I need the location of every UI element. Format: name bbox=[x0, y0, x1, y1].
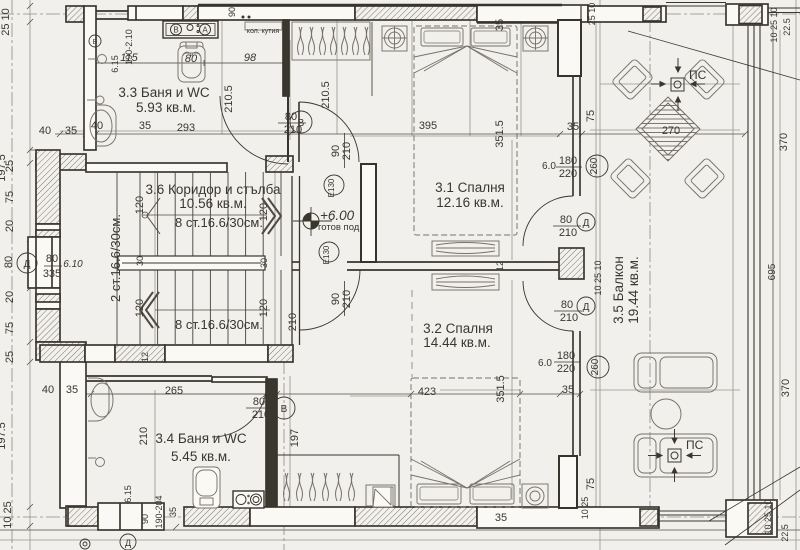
svg-text:6.0: 6.0 bbox=[542, 161, 556, 172]
svg-text:260: 260 bbox=[590, 358, 601, 375]
svg-text:Д: Д bbox=[125, 538, 131, 548]
svg-text:3.2 Спалня: 3.2 Спалня bbox=[423, 321, 493, 336]
svg-text:В: В bbox=[281, 404, 288, 415]
svg-text:75: 75 bbox=[585, 478, 597, 490]
svg-text:22.5: 22.5 bbox=[782, 18, 792, 36]
svg-text:40: 40 bbox=[39, 125, 51, 137]
svg-text:3.1 Спалня: 3.1 Спалня bbox=[435, 180, 505, 195]
svg-text:25 10: 25 10 bbox=[587, 3, 597, 26]
svg-text:20: 20 bbox=[4, 291, 16, 303]
svg-text:75: 75 bbox=[4, 191, 16, 203]
svg-text:120: 120 bbox=[134, 196, 146, 214]
svg-text:190-2.10: 190-2.10 bbox=[124, 29, 134, 65]
svg-text:80: 80 bbox=[561, 299, 573, 311]
svg-text:423: 423 bbox=[418, 386, 436, 398]
svg-text:75: 75 bbox=[585, 110, 597, 122]
svg-text:25 10: 25 10 bbox=[0, 8, 12, 36]
svg-text:35: 35 bbox=[567, 121, 579, 133]
svg-text:210: 210 bbox=[341, 142, 353, 160]
svg-text:10 25 10: 10 25 10 bbox=[763, 499, 773, 534]
svg-text:220: 220 bbox=[559, 168, 577, 180]
svg-text:14.44 кв.м.: 14.44 кв.м. bbox=[423, 335, 490, 350]
svg-text:35: 35 bbox=[65, 125, 77, 137]
svg-text:Д: Д bbox=[583, 302, 590, 313]
svg-text:90: 90 bbox=[140, 514, 150, 524]
svg-text:Е130: Е130 bbox=[327, 178, 336, 197]
svg-text:3.3 Баня и WC: 3.3 Баня и WC bbox=[118, 85, 209, 100]
svg-text:210: 210 bbox=[559, 227, 577, 239]
svg-text:Д: Д bbox=[583, 218, 590, 229]
svg-text:80: 80 bbox=[185, 53, 198, 65]
svg-text:80: 80 bbox=[3, 256, 15, 268]
svg-text:кол. кутия: кол. кутия bbox=[247, 28, 280, 35]
svg-text:В: В bbox=[173, 26, 178, 35]
svg-text:80: 80 bbox=[46, 253, 58, 265]
svg-text:2 ст.16.6/30см.: 2 ст.16.6/30см. bbox=[108, 214, 123, 302]
svg-text:12.16 кв.м.: 12.16 кв.м. bbox=[436, 195, 503, 210]
svg-text:120: 120 bbox=[258, 299, 270, 317]
svg-text:10 25: 10 25 bbox=[580, 497, 590, 520]
svg-text:35: 35 bbox=[66, 384, 78, 396]
svg-text:335: 335 bbox=[43, 268, 61, 280]
svg-text:8 ст.16.6/30см.: 8 ст.16.6/30см. bbox=[175, 215, 263, 230]
svg-text:197: 197 bbox=[289, 429, 301, 447]
svg-text:351.5: 351.5 bbox=[495, 375, 507, 403]
svg-text:351.5: 351.5 bbox=[494, 120, 506, 148]
svg-text:10 25: 10 25 bbox=[2, 501, 14, 529]
svg-text:35: 35 bbox=[494, 19, 506, 31]
svg-text:40: 40 bbox=[91, 120, 103, 132]
svg-text:210.5: 210.5 bbox=[223, 85, 235, 113]
svg-text:180: 180 bbox=[559, 155, 577, 167]
svg-text:30: 30 bbox=[135, 256, 145, 266]
svg-text:80: 80 bbox=[253, 396, 265, 408]
svg-text:6.15: 6.15 bbox=[110, 55, 120, 73]
svg-text:180: 180 bbox=[557, 350, 575, 362]
svg-text:80: 80 bbox=[560, 214, 572, 226]
svg-text:370: 370 bbox=[778, 133, 790, 151]
svg-text:265: 265 bbox=[165, 385, 183, 397]
svg-text:Д: Д bbox=[24, 259, 31, 270]
svg-text:12: 12 bbox=[495, 261, 505, 271]
svg-text:120: 120 bbox=[258, 203, 270, 221]
svg-text:210: 210 bbox=[138, 427, 150, 445]
svg-text:210.5: 210.5 bbox=[320, 81, 332, 109]
svg-text:197.5: 197.5 bbox=[0, 422, 8, 450]
svg-text:90: 90 bbox=[227, 7, 237, 17]
svg-text:3.4 Баня и WC: 3.4 Баня и WC bbox=[155, 431, 246, 446]
svg-text:25: 25 bbox=[4, 160, 16, 172]
svg-text:35: 35 bbox=[168, 507, 178, 517]
svg-text:40: 40 bbox=[42, 384, 54, 396]
svg-text:695: 695 bbox=[767, 263, 778, 280]
svg-text:30: 30 bbox=[259, 258, 269, 268]
svg-text:190-204: 190-204 bbox=[154, 495, 164, 528]
svg-text:В: В bbox=[298, 118, 305, 129]
svg-text:8 ст.16.6/30см.: 8 ст.16.6/30см. bbox=[175, 317, 263, 332]
svg-text:395: 395 bbox=[419, 120, 437, 132]
svg-text:22.5: 22.5 bbox=[780, 524, 790, 542]
svg-text:293: 293 bbox=[177, 122, 195, 134]
svg-text:75: 75 bbox=[4, 322, 16, 334]
svg-text:5.93 кв.м.: 5.93 кв.м. bbox=[136, 100, 196, 115]
svg-text:3.5 Балкон: 3.5 Балкон bbox=[611, 256, 626, 324]
svg-text:6.10: 6.10 bbox=[63, 259, 83, 270]
svg-text:220: 220 bbox=[557, 363, 575, 375]
svg-text:ПС: ПС bbox=[689, 68, 707, 82]
svg-text:3.6 Коридор и стълба: 3.6 Коридор и стълба bbox=[145, 182, 281, 197]
svg-text:10.56 кв.м.: 10.56 кв.м. bbox=[179, 196, 246, 211]
svg-text:25: 25 bbox=[4, 351, 16, 363]
svg-text:ПС: ПС bbox=[686, 438, 704, 452]
svg-text:35: 35 bbox=[495, 512, 507, 524]
svg-text:А: А bbox=[202, 26, 208, 35]
svg-text:19.44 кв.м.: 19.44 кв.м. bbox=[626, 256, 641, 323]
svg-text:210: 210 bbox=[560, 312, 578, 324]
svg-text:6.15: 6.15 bbox=[123, 485, 133, 503]
svg-text:260: 260 bbox=[589, 157, 600, 174]
svg-text:370: 370 bbox=[780, 379, 792, 397]
svg-text:5.45 кв.м.: 5.45 кв.м. bbox=[171, 449, 231, 464]
svg-text:35: 35 bbox=[562, 384, 574, 396]
svg-text:98: 98 bbox=[244, 52, 257, 64]
svg-text:Е130: Е130 bbox=[322, 245, 331, 264]
svg-text:готов под: готов под bbox=[318, 222, 360, 233]
svg-text:6.0: 6.0 bbox=[538, 358, 552, 369]
svg-text:270: 270 bbox=[662, 125, 680, 137]
svg-text:210: 210 bbox=[287, 313, 299, 331]
svg-text:В: В bbox=[93, 39, 98, 46]
svg-text:120: 120 bbox=[134, 299, 146, 317]
svg-text:210: 210 bbox=[341, 290, 353, 308]
svg-text:210: 210 bbox=[252, 409, 270, 421]
svg-text:10 25 10: 10 25 10 bbox=[769, 7, 779, 42]
svg-text:20: 20 bbox=[4, 220, 16, 232]
svg-text:35: 35 bbox=[139, 120, 151, 132]
svg-text:12: 12 bbox=[140, 352, 150, 362]
svg-text:+6.00: +6.00 bbox=[320, 208, 355, 223]
svg-text:10 25 10: 10 25 10 bbox=[593, 260, 603, 295]
